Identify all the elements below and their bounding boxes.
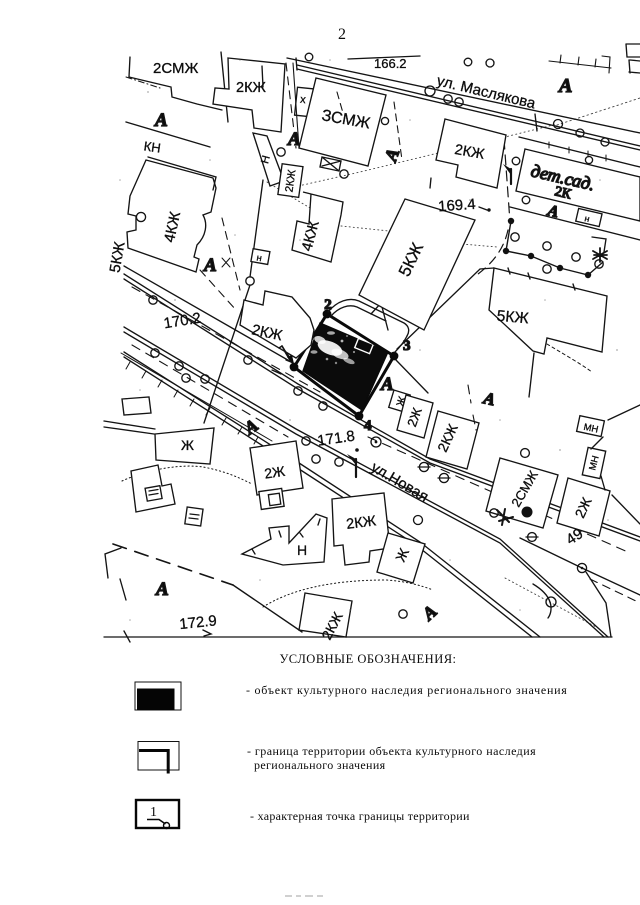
svg-text:регионального значения: регионального значения <box>254 758 386 772</box>
svg-text:169.4: 169.4 <box>438 196 477 216</box>
svg-text:А: А <box>203 255 217 276</box>
svg-text:2СМЖ: 2СМЖ <box>153 60 199 77</box>
svg-text:5КЖ: 5КЖ <box>496 308 530 328</box>
svg-text:2: 2 <box>324 297 332 313</box>
svg-text:2: 2 <box>338 26 346 43</box>
svg-text:166.2: 166.2 <box>374 56 407 71</box>
svg-text:- граница территории объекта к: - граница территории объекта культурного… <box>247 744 536 758</box>
svg-text:2Ж: 2Ж <box>263 463 286 482</box>
svg-text:А: А <box>155 579 169 600</box>
svg-text:2КЖ: 2КЖ <box>236 80 267 96</box>
svg-text:1: 1 <box>150 805 157 820</box>
svg-text:4: 4 <box>364 418 372 434</box>
svg-text:А: А <box>380 374 394 395</box>
svg-text:А: А <box>557 75 572 97</box>
svg-text:- характерная точка границы т: - характерная точка границы территории <box>250 809 470 823</box>
svg-text:Ж: Ж <box>181 437 194 453</box>
svg-text:КН: КН <box>143 138 162 155</box>
svg-text:- объект культурного наследия: - объект культурного наследия региональн… <box>246 683 568 697</box>
svg-text:УСЛОВНЫЕ ОБОЗНАЧЕНИЯ:: УСЛОВНЫЕ ОБОЗНАЧЕНИЯ: <box>279 652 456 666</box>
svg-text:А: А <box>154 110 168 131</box>
svg-text:Н: Н <box>297 542 307 558</box>
